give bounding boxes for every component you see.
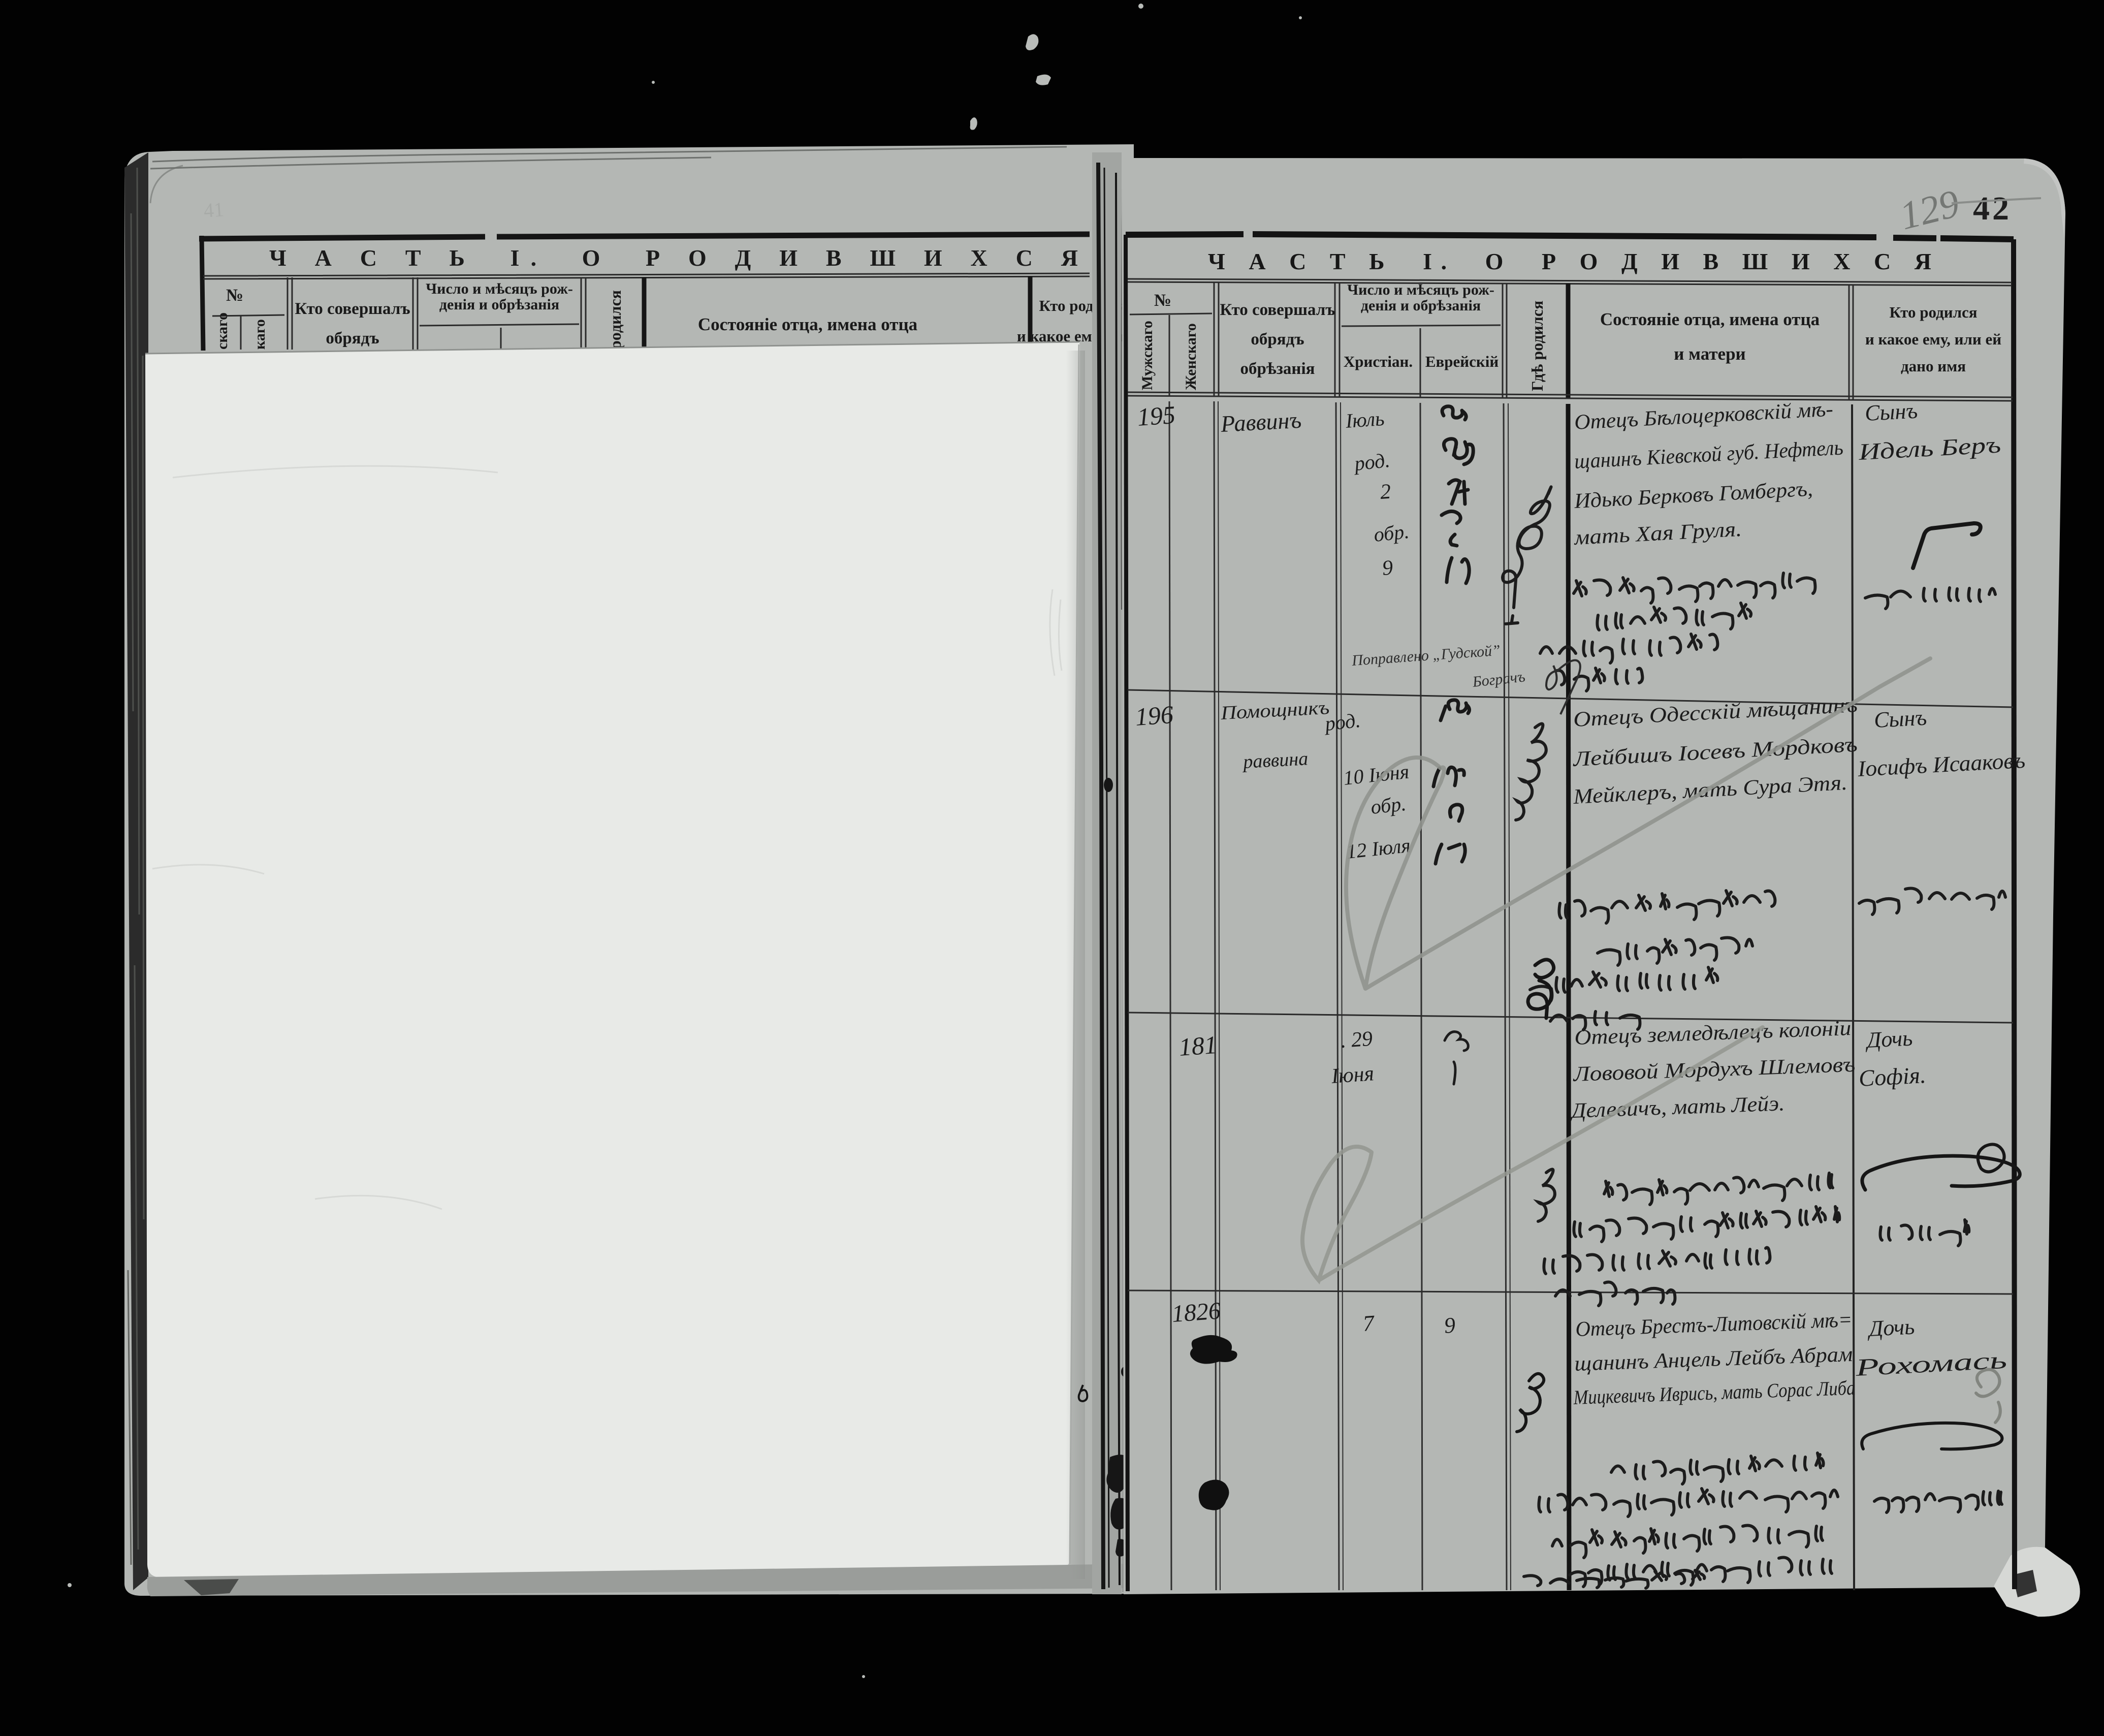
svg-text:дано имя: дано имя (1901, 357, 1966, 375)
svg-text:денія и обрѣзанія: денія и обрѣзанія (439, 296, 559, 313)
svg-text:Кто родился: Кто родился (1889, 303, 1977, 321)
svg-text:9: 9 (1381, 556, 1393, 580)
svg-text:Раввинъ: Раввинъ (1220, 407, 1302, 437)
svg-text:Софія.: Софія. (1858, 1062, 1927, 1091)
svg-text:обр.: обр. (1369, 792, 1407, 818)
svg-text:обрядъ: обрядъ (326, 329, 379, 348)
svg-text:Мужскаго: Мужскаго (1139, 321, 1156, 390)
svg-text:Іюль: Іюль (1344, 407, 1385, 432)
svg-text:Іюня: Іюня (1330, 1062, 1375, 1088)
svg-text:Ч А С Т Ь І. О Р О Д И В Ш: Ч А С Т Ь І. О Р О Д И В Ш И Х С Я (1208, 248, 1931, 274)
svg-text:42: 42 (1973, 190, 2012, 227)
svg-text:. 29: . 29 (1340, 1027, 1373, 1053)
svg-text:род.: род. (1352, 449, 1391, 475)
svg-text:№: № (226, 286, 243, 305)
svg-text:2: 2 (1379, 480, 1391, 504)
svg-text:41: 41 (203, 198, 225, 222)
svg-text:Сынъ: Сынъ (1873, 705, 1927, 733)
svg-text:обрѣзанія: обрѣзанія (1240, 360, 1315, 378)
svg-text:скаго: скаго (214, 312, 231, 350)
svg-text:род.: род. (1322, 709, 1361, 735)
svg-text:1826: 1826 (1171, 1297, 1221, 1328)
svg-text:Кто совершалъ: Кто совершалъ (295, 300, 410, 318)
svg-text:каго: каго (251, 319, 268, 350)
svg-text:денія и обрѣзанія: денія и обрѣзанія (1361, 297, 1481, 314)
svg-text:обр.: обр. (1373, 520, 1410, 546)
svg-text:181: 181 (1178, 1030, 1218, 1061)
svg-text:Кто совершалъ: Кто совершалъ (1220, 301, 1335, 319)
svg-text:Состояніе отца, имена отца: Состояніе отца, имена отца (698, 314, 917, 334)
svg-text:раввина: раввина (1241, 748, 1309, 773)
svg-text:195: 195 (1136, 400, 1176, 431)
svg-text:и матери: и матери (1674, 344, 1745, 364)
svg-text:Женскаго: Женскаго (1183, 323, 1199, 390)
svg-text:Дочь: Дочь (1866, 1314, 1915, 1341)
svg-text:Ч А С Т Ь І. О Р О Д И В Ш: Ч А С Т Ь І. О Р О Д И В Ш И Х С Я (269, 245, 1078, 271)
svg-text:и какое ему, или ей: и какое ему, или ей (1865, 330, 2001, 348)
svg-text:9: 9 (1443, 1313, 1456, 1338)
svg-text:196: 196 (1134, 700, 1174, 731)
svg-text:Гдѣ родился: Гдѣ родился (1528, 301, 1546, 391)
svg-text:Еврейскій: Еврейскій (1425, 353, 1499, 370)
svg-text:родился: родился (606, 290, 624, 350)
svg-text:обрядъ: обрядъ (1251, 330, 1304, 349)
svg-text:Число и мѣсяцъ рож-: Число и мѣсяцъ рож- (1347, 281, 1494, 298)
svg-text:Христіан.: Христіан. (1344, 353, 1413, 370)
svg-text:Дочь: Дочь (1864, 1025, 1913, 1053)
svg-text:№: № (1154, 291, 1171, 310)
svg-text:Состояніе отца, имена отца: Состояніе отца, имена отца (1600, 309, 1820, 329)
svg-text:Сынъ: Сынъ (1864, 398, 1918, 426)
svg-text:Число и мѣсяцъ рож-: Число и мѣсяцъ рож- (426, 280, 573, 297)
